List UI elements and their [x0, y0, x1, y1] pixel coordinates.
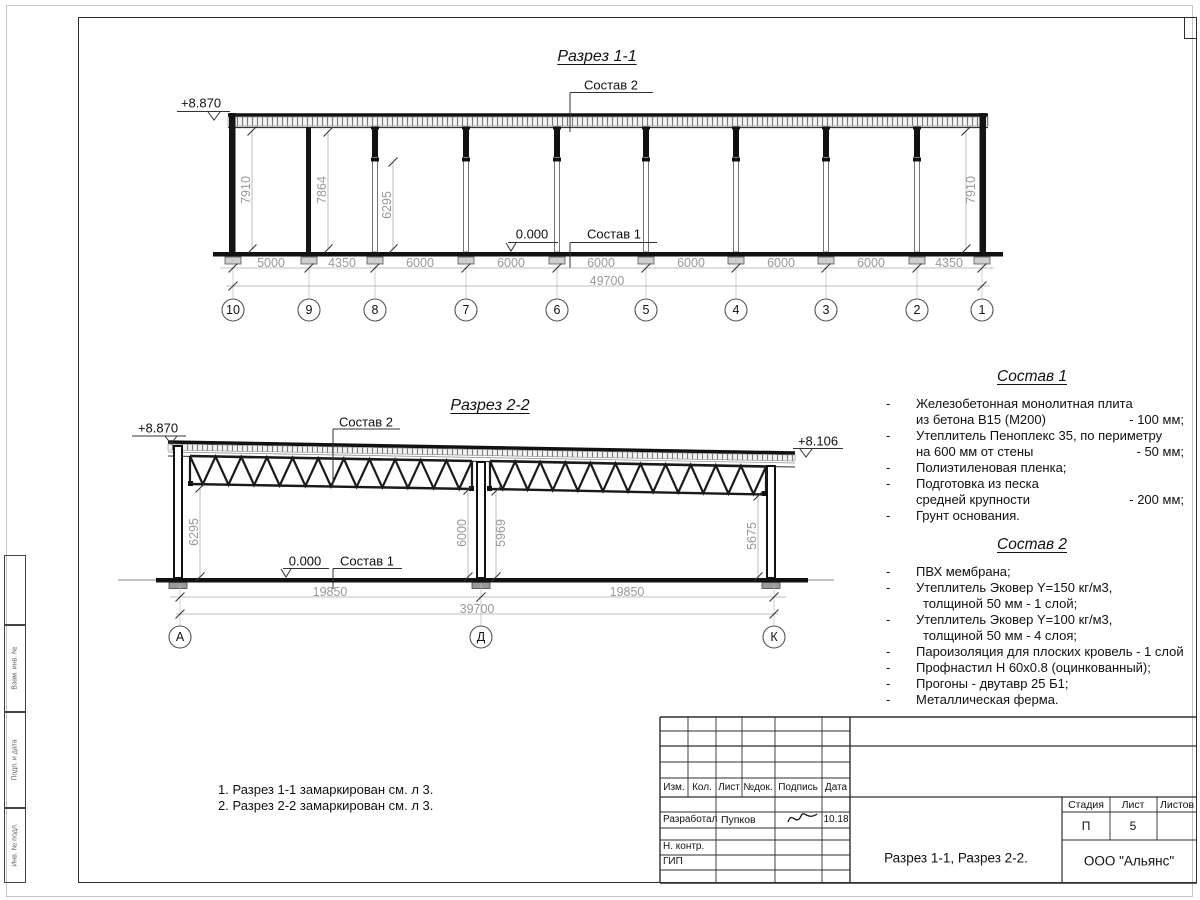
- list-item: толщиной 50 мм - 4 слоя;: [880, 628, 1184, 644]
- s2-elevation-right: +8.106: [798, 435, 838, 448]
- bullet: -: [880, 692, 916, 708]
- tb-company: ООО "Альянс": [1084, 854, 1174, 868]
- s2-sostav2-label: Состав 2: [339, 416, 393, 429]
- item-text: Грунт основания.: [916, 508, 1184, 524]
- bullet: [880, 628, 916, 644]
- s1-total-dim: 49700: [590, 275, 625, 288]
- item-value: - 200 мм;: [1129, 492, 1184, 508]
- s1-height-dim: 7910: [965, 176, 978, 204]
- bullet: -: [880, 580, 916, 596]
- list-item: -Утеплитель Эковер Y=150 кг/м3,: [880, 580, 1184, 596]
- bullet: [880, 596, 916, 612]
- tb-stage-label: Стадия: [1068, 800, 1104, 811]
- item-text: из бетона В15 (М200): [916, 412, 1129, 428]
- s1-height-dim: 7864: [316, 176, 329, 204]
- item-text: Прогоны - двутавр 25 Б1;: [916, 676, 1184, 692]
- list-item: -Утеплитель Эковер Y=100 кг/м3,: [880, 612, 1184, 628]
- list-item: средней крупности- 200 мм;: [880, 492, 1184, 508]
- section2-truss-1: [188, 456, 474, 491]
- section1-title: Разрез 1-1: [557, 49, 636, 65]
- tb-sheet-label: Лист: [1122, 800, 1145, 811]
- tb-developer-name: Пупков: [721, 815, 756, 826]
- composition-2-title: Состав 2: [880, 536, 1184, 554]
- s1-sostav1-label: Состав 1: [587, 228, 641, 241]
- tb-date: 10.18: [823, 815, 848, 825]
- s1-axis-label: 6: [554, 304, 561, 317]
- list-item: -Прогоны - двутавр 25 Б1;: [880, 676, 1184, 692]
- item-text: Подготовка из песка: [916, 476, 1184, 492]
- tb-doc-title: Разрез 1-1, Разрез 2-2.: [884, 851, 1028, 865]
- s1-bay-dim: 6000: [677, 257, 705, 270]
- s1-axis-label: 7: [463, 304, 470, 317]
- note-line: 1. Разрез 1-1 замаркирован см. л 3.: [218, 782, 433, 798]
- s1-axis-label: 1: [979, 304, 986, 317]
- tb-ncontr-label: Н. контр.: [663, 842, 704, 852]
- s1-bay-dim: 6000: [767, 257, 795, 270]
- bullet: -: [880, 508, 916, 524]
- list-item: -Полиэтиленовая пленка;: [880, 460, 1184, 476]
- s2-axis-label: А: [176, 631, 184, 644]
- bullet: -: [880, 612, 916, 628]
- section1-columns: [371, 127, 921, 253]
- s1-axis-label: 2: [914, 304, 921, 317]
- s1-axis-label: 4: [733, 304, 740, 317]
- s1-axis-label: 5: [643, 304, 650, 317]
- list-item: -Металлическая ферма.: [880, 692, 1184, 708]
- s1-axis-label: 8: [372, 304, 379, 317]
- item-text: толщиной 50 мм - 4 слоя;: [916, 628, 1184, 644]
- s1-axis-label: 3: [823, 304, 830, 317]
- bullet: -: [880, 460, 916, 476]
- bullet: -: [880, 396, 916, 412]
- bullet: -: [880, 476, 916, 492]
- item-text: Утеплитель Эковер Y=100 кг/м3,: [916, 612, 1184, 628]
- section1-axis-circles: [222, 299, 993, 321]
- item-text: Пароизоляция для плоских кровель - 1 сло…: [916, 644, 1184, 660]
- composition-1-title: Состав 1: [880, 368, 1184, 386]
- tb-gip-label: ГИП: [663, 857, 683, 867]
- s2-sostav1-label: Состав 1: [340, 555, 394, 568]
- bullet: [880, 492, 916, 508]
- s2-zero-level: 0.000: [289, 555, 322, 568]
- tb-col-podpis: Подпись: [778, 783, 818, 793]
- s1-bay-dim: 4350: [935, 257, 963, 270]
- s1-height-dim: 7910: [240, 176, 253, 204]
- bullet: [880, 444, 916, 460]
- tb-col-kol: Кол.: [692, 783, 712, 793]
- composition-2: Состав 2 -ПВХ мембрана; -Утеплитель Эков…: [880, 536, 1184, 708]
- list-item: -Подготовка из песка: [880, 476, 1184, 492]
- list-item: -Грунт основания.: [880, 508, 1184, 524]
- drawing-sheet: Взам. инв. № Подп. и дата Инв. № подл.: [0, 0, 1200, 900]
- tb-sheet-value: 5: [1130, 820, 1137, 832]
- s1-bay-dim: 6000: [587, 257, 615, 270]
- section1-roof: [228, 115, 988, 128]
- s2-span-dim: 19850: [313, 586, 348, 599]
- section2-floor: [118, 578, 834, 589]
- tb-col-list: Лист: [718, 783, 740, 793]
- item-value: - 50 мм;: [1137, 444, 1185, 460]
- item-text: Металлическая ферма.: [916, 692, 1184, 708]
- s1-zero-level: 0.000: [516, 228, 549, 241]
- s1-sostav2-label: Состав 2: [584, 79, 638, 92]
- bullet: -: [880, 564, 916, 580]
- s2-axis-label: К: [770, 631, 777, 644]
- item-text: ПВХ мембрана;: [916, 564, 1184, 580]
- tb-stage-value: П: [1082, 820, 1091, 832]
- composition-1: Состав 1 -Железобетонная монолитная плит…: [880, 368, 1184, 524]
- tb-col-izm: Изм.: [663, 783, 684, 793]
- s2-height-dim: 5969: [495, 519, 508, 547]
- item-value: - 100 мм;: [1129, 412, 1184, 428]
- notes: 1. Разрез 1-1 замаркирован см. л 3. 2. Р…: [218, 782, 433, 813]
- item-text: Полиэтиленовая пленка;: [916, 460, 1184, 476]
- s1-axis-label: 9: [306, 304, 313, 317]
- list-item: -Утеплитель Пеноплекс 35, по периметру: [880, 428, 1184, 444]
- s1-height-dim: 6295: [381, 191, 394, 219]
- s2-total-dim: 39700: [460, 603, 495, 616]
- s1-axis-label: 10: [226, 304, 240, 317]
- s2-axis-label: Д: [477, 631, 485, 644]
- s1-bay-dim: 6000: [406, 257, 434, 270]
- item-text: Утеплитель Эковер Y=150 кг/м3,: [916, 580, 1184, 596]
- item-text: Железобетонная монолитная плита: [916, 396, 1184, 412]
- s1-bay-dim: 5000: [257, 257, 285, 270]
- tb-developer-label: Разработал: [663, 815, 717, 825]
- list-item: -ПВХ мембрана;: [880, 564, 1184, 580]
- item-text: на 600 мм от стены: [916, 444, 1137, 460]
- note-line: 2. Разрез 2-2 замаркирован см. л 3.: [218, 798, 433, 814]
- s2-height-dim: 6000: [456, 519, 469, 547]
- s2-elevation-left: +8.870: [138, 422, 178, 435]
- tb-col-data: Дата: [825, 783, 847, 793]
- s1-bay-dim: 4350: [328, 257, 356, 270]
- bullet: -: [880, 644, 916, 660]
- s1-bay-dim: 6000: [497, 257, 525, 270]
- list-item: из бетона В15 (М200)- 100 мм;: [880, 412, 1184, 428]
- item-text: средней крупности: [916, 492, 1129, 508]
- section2-title: Разрез 2-2: [450, 398, 529, 414]
- tb-col-ndok: №док.: [743, 783, 772, 793]
- s1-bay-dim: 6000: [857, 257, 885, 270]
- bullet: -: [880, 676, 916, 692]
- s2-span-dim: 19850: [610, 586, 645, 599]
- s2-height-dim: 5675: [746, 522, 759, 550]
- s1-elevation-left: +8.870: [181, 97, 221, 110]
- list-item: -Железобетонная монолитная плита: [880, 396, 1184, 412]
- item-text: Утеплитель Пеноплекс 35, по периметру: [916, 428, 1184, 444]
- signature: [788, 814, 817, 822]
- bullet: [880, 412, 916, 428]
- list-item: толщиной 50 мм - 1 слой;: [880, 596, 1184, 612]
- section2-truss-2: [487, 461, 767, 496]
- list-item: -Пароизоляция для плоских кровель - 1 сл…: [880, 644, 1184, 660]
- item-text: Профнастил Н 60х0.8 (оцинкованный);: [916, 660, 1184, 676]
- list-item: на 600 мм от стены- 50 мм;: [880, 444, 1184, 460]
- item-text: толщиной 50 мм - 1 слой;: [916, 596, 1184, 612]
- list-item: -Профнастил Н 60х0.8 (оцинкованный);: [880, 660, 1184, 676]
- tb-sheets-label: Листов: [1160, 800, 1194, 811]
- bullet: -: [880, 660, 916, 676]
- bullet: -: [880, 428, 916, 444]
- s2-height-dim: 6295: [188, 518, 201, 546]
